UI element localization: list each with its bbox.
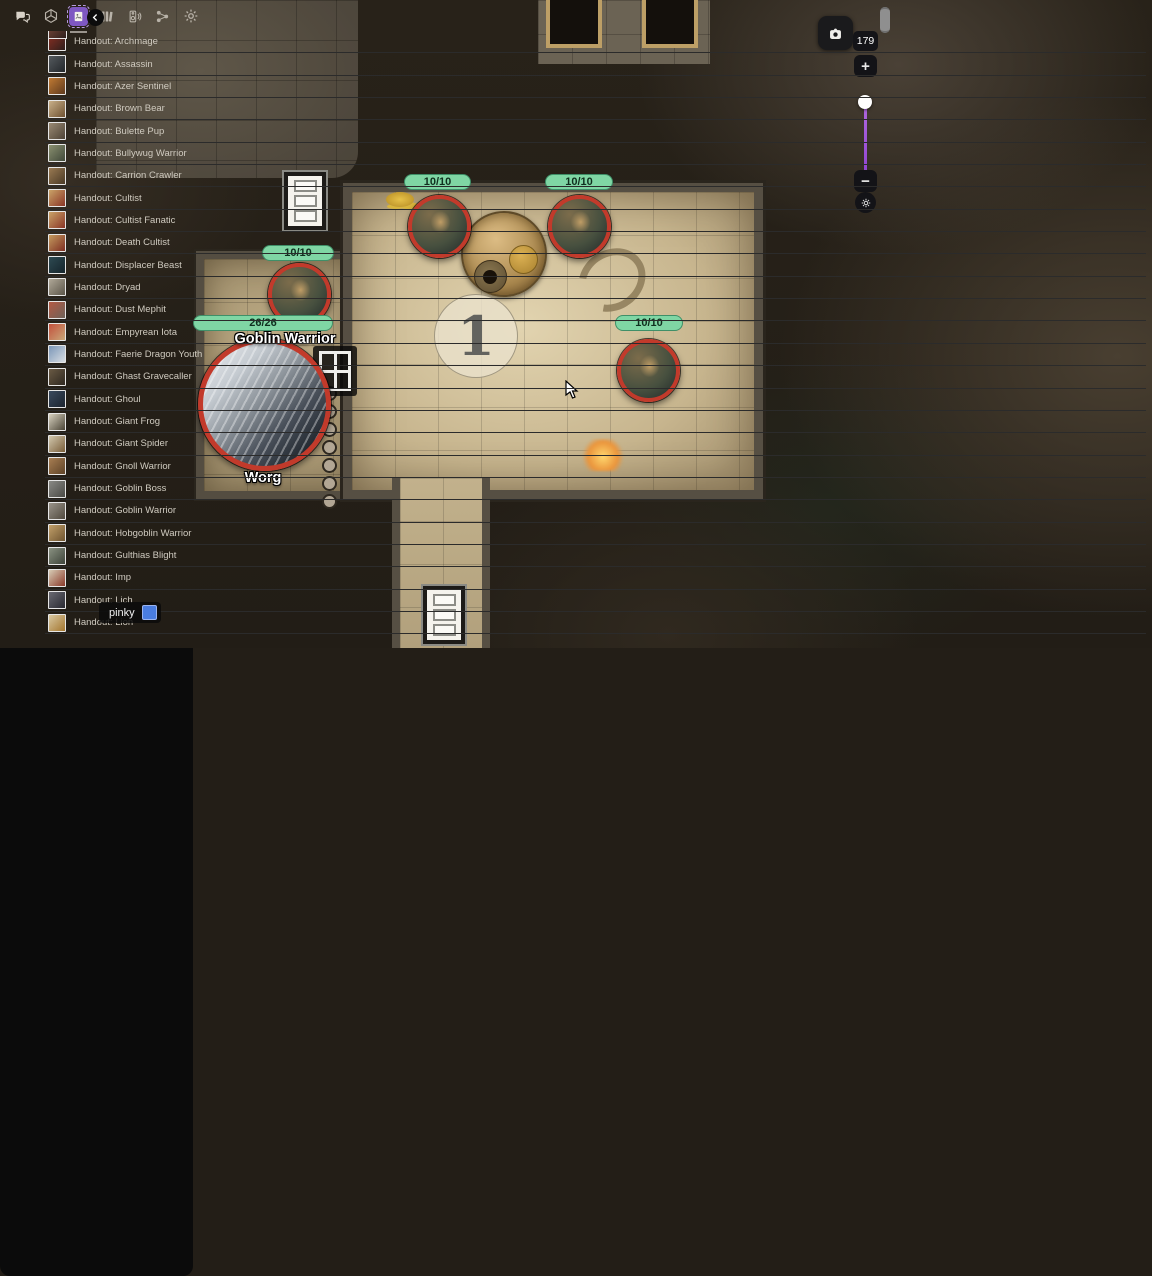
handout-row[interactable]: Handout: Assassin	[45, 53, 1146, 75]
handout-thumbnail	[48, 547, 66, 565]
handout-thumbnail	[48, 55, 66, 73]
handout-list: Handout: Archmage Handout: Assassin Hand…	[0, 31, 1152, 646]
handout-row[interactable]: Handout: Hobgoblin Warrior	[45, 523, 1146, 545]
handout-row[interactable]: Handout: Gnoll Warrior	[45, 456, 1146, 478]
handout-thumbnail	[48, 100, 66, 118]
handout-row[interactable]: Handout: Imp	[45, 567, 1146, 589]
handout-label: Handout: Bulette Pup	[74, 126, 164, 137]
handout-label: Handout: Death Cultist	[74, 237, 170, 248]
handout-thumbnail	[48, 524, 66, 542]
handout-row[interactable]: Handout: Cultist Fanatic	[45, 210, 1146, 232]
tab-audio[interactable]	[125, 7, 144, 26]
handout-thumbnail	[48, 256, 66, 274]
handout-thumbnail	[48, 77, 66, 95]
handout-thumbnail	[48, 413, 66, 431]
handout-row[interactable]: Handout: Bulette Pup	[45, 120, 1146, 142]
handout-row[interactable]: Handout: Displacer Beast	[45, 254, 1146, 276]
handout-thumbnail	[48, 390, 66, 408]
handout-label: Handout: Goblin Boss	[74, 483, 166, 494]
handout-row[interactable]: Handout: Archmage	[45, 31, 1146, 53]
handout-thumbnail	[48, 480, 66, 498]
handout-row[interactable]: Handout: Gulthias Blight	[45, 545, 1146, 567]
handout-row[interactable]: Handout: Giant Frog	[45, 411, 1146, 433]
handout-row[interactable]: Handout: Empyrean Iota	[45, 321, 1146, 343]
handout-label: Handout: Dust Mephit	[74, 304, 166, 315]
user-name: pinky	[109, 607, 135, 619]
settings-gear-icon	[183, 8, 199, 24]
handout-thumbnail	[48, 435, 66, 453]
handout-row[interactable]: Handout: Brown Bear	[45, 98, 1146, 120]
handout-label: Handout: Giant Spider	[74, 438, 168, 449]
handout-thumbnail	[48, 211, 66, 229]
handout-thumbnail	[48, 122, 66, 140]
handout-row[interactable]: Handout: Goblin Warrior	[45, 500, 1146, 522]
sidebar-scrollbar-thumb[interactable]	[880, 7, 890, 33]
handout-row[interactable]: Handout: Dust Mephit	[45, 299, 1146, 321]
handout-label: Handout: Gnoll Warrior	[74, 461, 171, 472]
handout-row[interactable]: Handout: Lion	[45, 612, 1146, 634]
network-share-icon	[155, 9, 170, 24]
handout-label: Handout: Dryad	[74, 282, 141, 293]
tab-settings[interactable]	[181, 7, 200, 26]
handout-row[interactable]: Handout: Ghoul	[45, 389, 1146, 411]
handout-label: Handout: Imp	[74, 572, 131, 583]
handout-thumbnail	[48, 345, 66, 363]
handout-row[interactable]: Handout: Faerie Dragon Youth	[45, 344, 1146, 366]
handout-label: Handout: Archmage	[74, 36, 158, 47]
tab-share[interactable]	[153, 7, 172, 26]
handout-label: Handout: Azer Sentinel	[74, 81, 171, 92]
handout-label: Handout: Bullywug Warrior	[74, 148, 187, 159]
tab-handouts[interactable]	[69, 7, 88, 26]
handout-row[interactable]: Handout: Ghast Gravecaller	[45, 366, 1146, 388]
handout-label: Handout: Cultist Fanatic	[74, 215, 175, 226]
handout-row[interactable]: Handout: Carrion Crawler	[45, 165, 1146, 187]
handout-label: Handout: Ghoul	[74, 394, 141, 405]
handout-thumbnail	[48, 144, 66, 162]
handout-row[interactable]: Handout: Death Cultist	[45, 232, 1146, 254]
handout-row[interactable]: Handout: Goblin Boss	[45, 478, 1146, 500]
handout-row[interactable]: Handout: Lich	[45, 590, 1146, 612]
handout-label: Handout: Cultist	[74, 193, 142, 204]
chat-bubbles-icon	[14, 9, 31, 24]
handout-thumbnail	[48, 502, 66, 520]
panel-tab-bar	[0, 0, 1152, 32]
handout-thumbnail-partial	[48, 31, 67, 39]
handout-label: Handout: Brown Bear	[74, 103, 165, 114]
collapse-toolbar-button[interactable]	[87, 9, 104, 26]
handout-label: Handout: Goblin Warrior	[74, 505, 176, 516]
handout-row[interactable]: Handout: Cultist	[45, 187, 1146, 209]
handout-thumbnail	[48, 323, 66, 341]
handout-thumbnail	[48, 189, 66, 207]
handout-thumbnail	[48, 301, 66, 319]
handout-row[interactable]: Handout: Bullywug Warrior	[45, 143, 1146, 165]
handout-thumbnail	[48, 591, 66, 609]
tab-dice[interactable]	[41, 7, 60, 26]
handout-thumbnail	[48, 278, 66, 296]
handout-label: Handout: Giant Frog	[74, 416, 160, 427]
handout-thumbnail	[48, 569, 66, 587]
chevron-left-icon	[91, 13, 100, 22]
handout-document-icon	[72, 10, 85, 23]
user-color-swatch[interactable]	[142, 605, 157, 620]
tab-chat[interactable]	[13, 7, 32, 26]
user-badge: pinky	[99, 602, 161, 623]
handout-thumbnail	[48, 614, 66, 632]
handout-label: Handout: Gulthias Blight	[74, 550, 176, 561]
handouts-panel: Handout: Archmage Handout: Assassin Hand…	[0, 632, 193, 1276]
handout-label: Handout: Assassin	[74, 59, 153, 70]
dice-icon	[43, 8, 59, 24]
handout-thumbnail	[48, 368, 66, 386]
handout-label: Handout: Hobgoblin Warrior	[74, 528, 191, 539]
handout-row[interactable]: Handout: Azer Sentinel	[45, 76, 1146, 98]
handout-row[interactable]: Handout: Dryad	[45, 277, 1146, 299]
handout-label: Handout: Faerie Dragon Youth	[74, 349, 202, 360]
handout-thumbnail	[48, 167, 66, 185]
handout-label: Handout: Empyrean Iota	[74, 327, 177, 338]
handout-label: Handout: Ghast Gravecaller	[74, 371, 192, 382]
handout-thumbnail	[48, 457, 66, 475]
handout-thumbnail	[48, 234, 66, 252]
speaker-icon	[127, 9, 142, 24]
handout-label: Handout: Carrion Crawler	[74, 170, 182, 181]
handout-label: Handout: Displacer Beast	[74, 260, 182, 271]
handout-row[interactable]: Handout: Giant Spider	[45, 433, 1146, 455]
